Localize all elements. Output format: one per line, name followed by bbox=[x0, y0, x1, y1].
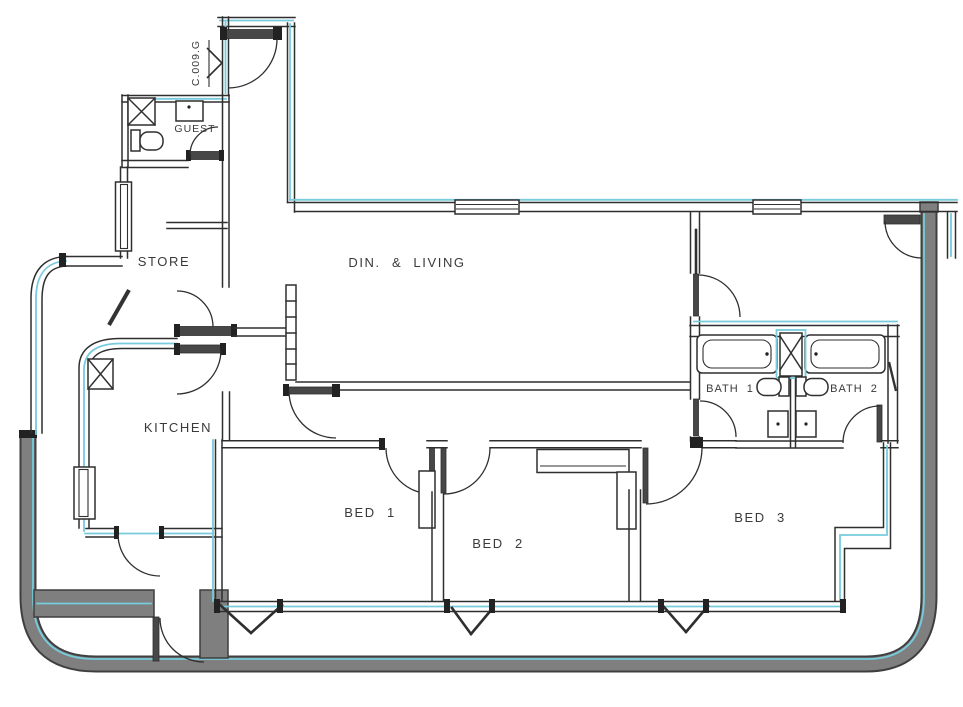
window-cap-5 bbox=[658, 599, 664, 613]
band-fill bbox=[28, 212, 929, 664]
bath2-label: BATH 2 bbox=[830, 383, 878, 395]
corridor-right-wall bbox=[288, 23, 295, 212]
kitchen-room: KITCHEN bbox=[74, 339, 230, 577]
bed2-label: BED 2 bbox=[472, 536, 524, 551]
bed1-label: BED 1 bbox=[344, 505, 396, 520]
bathrooms: BATH 1 BATH 2 bbox=[690, 322, 899, 448]
window-cap-3 bbox=[444, 599, 450, 613]
shaft-xbox-bath bbox=[780, 333, 802, 376]
bath1-label: BATH 1 bbox=[706, 383, 754, 395]
bathtub-1-drain bbox=[765, 352, 768, 355]
terrace-door-swing-arc bbox=[160, 618, 204, 662]
kitchen-top-door-swing-arc bbox=[177, 350, 221, 394]
guest-label: GUEST bbox=[174, 123, 215, 135]
entry-corridor: C.009.G bbox=[190, 17, 295, 212]
bed1-door-cap bbox=[379, 438, 385, 450]
s-curve-inner-line bbox=[42, 266, 66, 433]
entrance-code-label: C.009.G bbox=[190, 40, 202, 86]
floor-plan-canvas: C.009.G GUEST STORE bbox=[0, 0, 963, 707]
guest-door-leaf bbox=[189, 152, 222, 160]
casement-v-3 bbox=[664, 606, 708, 632]
bed2-door-leaf bbox=[441, 448, 446, 493]
entrance-door-cap-right bbox=[273, 27, 282, 40]
entry-top-wall bbox=[218, 18, 295, 27]
store-label: STORE bbox=[138, 254, 191, 269]
s-curve-cyan bbox=[36, 261, 66, 434]
kitchen-bottom-door-swing-arc bbox=[118, 534, 160, 576]
guest-sink bbox=[176, 101, 203, 121]
hall-door-upper-leaf bbox=[178, 327, 233, 336]
guest-toilet-bowl bbox=[140, 132, 163, 150]
hall-doors bbox=[174, 291, 287, 337]
hall-west-door-leaf bbox=[694, 274, 699, 316]
bathtub-2-drain bbox=[814, 352, 817, 355]
bath2-shower-door-line bbox=[889, 362, 896, 391]
hall-north-wall-cap bbox=[59, 253, 66, 267]
floor-plan-page: C.009.G GUEST STORE bbox=[0, 0, 963, 707]
living-top-window bbox=[455, 200, 519, 214]
dining-living-label: DIN. & LIVING bbox=[348, 255, 465, 270]
dining-living-room: DIN. & LIVING bbox=[283, 200, 957, 438]
bed1-west-wall bbox=[216, 440, 223, 601]
bath1-door-swing-arc bbox=[700, 401, 736, 437]
store-window bbox=[116, 182, 132, 251]
window-cap-1 bbox=[214, 599, 220, 613]
window-cap-4 bbox=[489, 599, 495, 613]
band-left-end-cap bbox=[19, 430, 37, 438]
south-window-wall bbox=[214, 599, 846, 634]
toilet-1-bowl bbox=[757, 379, 781, 396]
band-edge bbox=[28, 212, 929, 664]
curved-exterior-wall bbox=[31, 257, 66, 435]
guest-west-wall bbox=[122, 95, 128, 167]
bath1-door-leaf bbox=[694, 399, 699, 436]
hall-west-door-swing-arc bbox=[698, 275, 740, 317]
kitchen-bottom-door-cap-right bbox=[159, 526, 164, 539]
bath2-door-swing-arc bbox=[843, 406, 880, 443]
toilet-2-bowl bbox=[804, 379, 828, 396]
bed2-side-wardrobe bbox=[617, 472, 636, 529]
terrace-door-leaf bbox=[153, 617, 159, 661]
bed3-door-leaf bbox=[643, 448, 648, 503]
guest-south-wall bbox=[122, 161, 188, 168]
living-corridor-door-cap-left bbox=[283, 384, 289, 396]
living-corridor-door-cap-right bbox=[332, 384, 340, 397]
sink-2-drain bbox=[804, 422, 807, 425]
bedroom-2: BED 2 bbox=[432, 448, 636, 601]
entrance-door-cap-left bbox=[220, 27, 227, 40]
entrance-door-leaf bbox=[224, 30, 278, 39]
window-cap-6 bbox=[703, 599, 709, 613]
hall-door-upper-cap-right bbox=[231, 324, 237, 337]
corridor-south-wall-segments bbox=[222, 441, 898, 448]
hall-door-upper-swing-arc bbox=[177, 291, 213, 327]
bed3-bath-jamb-block bbox=[690, 437, 703, 448]
bath2-door-leaf bbox=[877, 405, 882, 442]
hall-top-window bbox=[753, 200, 801, 214]
bedroom-3: BED 3 bbox=[629, 443, 891, 601]
guest-store-east-wall bbox=[223, 95, 230, 287]
living-corridor-door-swing-arc bbox=[289, 391, 336, 438]
store-tee-wall bbox=[167, 223, 227, 229]
band-right-end-cap bbox=[920, 202, 938, 212]
guest-sink-drain bbox=[187, 105, 190, 108]
hall-passage-wall bbox=[233, 328, 287, 336]
kitchen-window bbox=[74, 467, 95, 519]
bed3-east-cyan bbox=[840, 446, 887, 601]
bed3-east-stepped-wall bbox=[835, 443, 891, 601]
kitchen-label: KITCHEN bbox=[144, 420, 212, 435]
band-door-leaf bbox=[884, 215, 920, 224]
band-door-swing-arc bbox=[885, 221, 922, 258]
window-cap-7 bbox=[840, 599, 846, 613]
kitchen-east-wall bbox=[223, 392, 230, 440]
living-top-wall bbox=[288, 203, 958, 212]
bedroom-1: BED 1 bbox=[216, 440, 436, 601]
store-door-leaf-angled bbox=[109, 290, 129, 325]
sink-1-drain bbox=[776, 422, 779, 425]
living-south-wall bbox=[296, 382, 690, 390]
hall-door-upper-cap-left bbox=[174, 324, 180, 337]
bath-divider-wall bbox=[791, 377, 796, 447]
window-cap-2 bbox=[277, 599, 283, 613]
living-corridor-door-leaf bbox=[288, 387, 336, 394]
hall-north-wall bbox=[64, 257, 122, 267]
kitchen-top-door-leaf bbox=[178, 345, 223, 353]
kitchen-top-door-cap-left bbox=[174, 343, 180, 355]
bed2-closet bbox=[537, 450, 629, 473]
bed2-door-swing-arc bbox=[444, 448, 490, 494]
guest-door-cap-right bbox=[219, 150, 224, 161]
bath-east-wall bbox=[888, 325, 898, 443]
bed3-label: BED 3 bbox=[734, 510, 786, 525]
bed3-door-swing-arc bbox=[646, 448, 702, 504]
guest-toilet-tank bbox=[131, 130, 140, 151]
entrance-door-swing-arc bbox=[228, 39, 277, 88]
